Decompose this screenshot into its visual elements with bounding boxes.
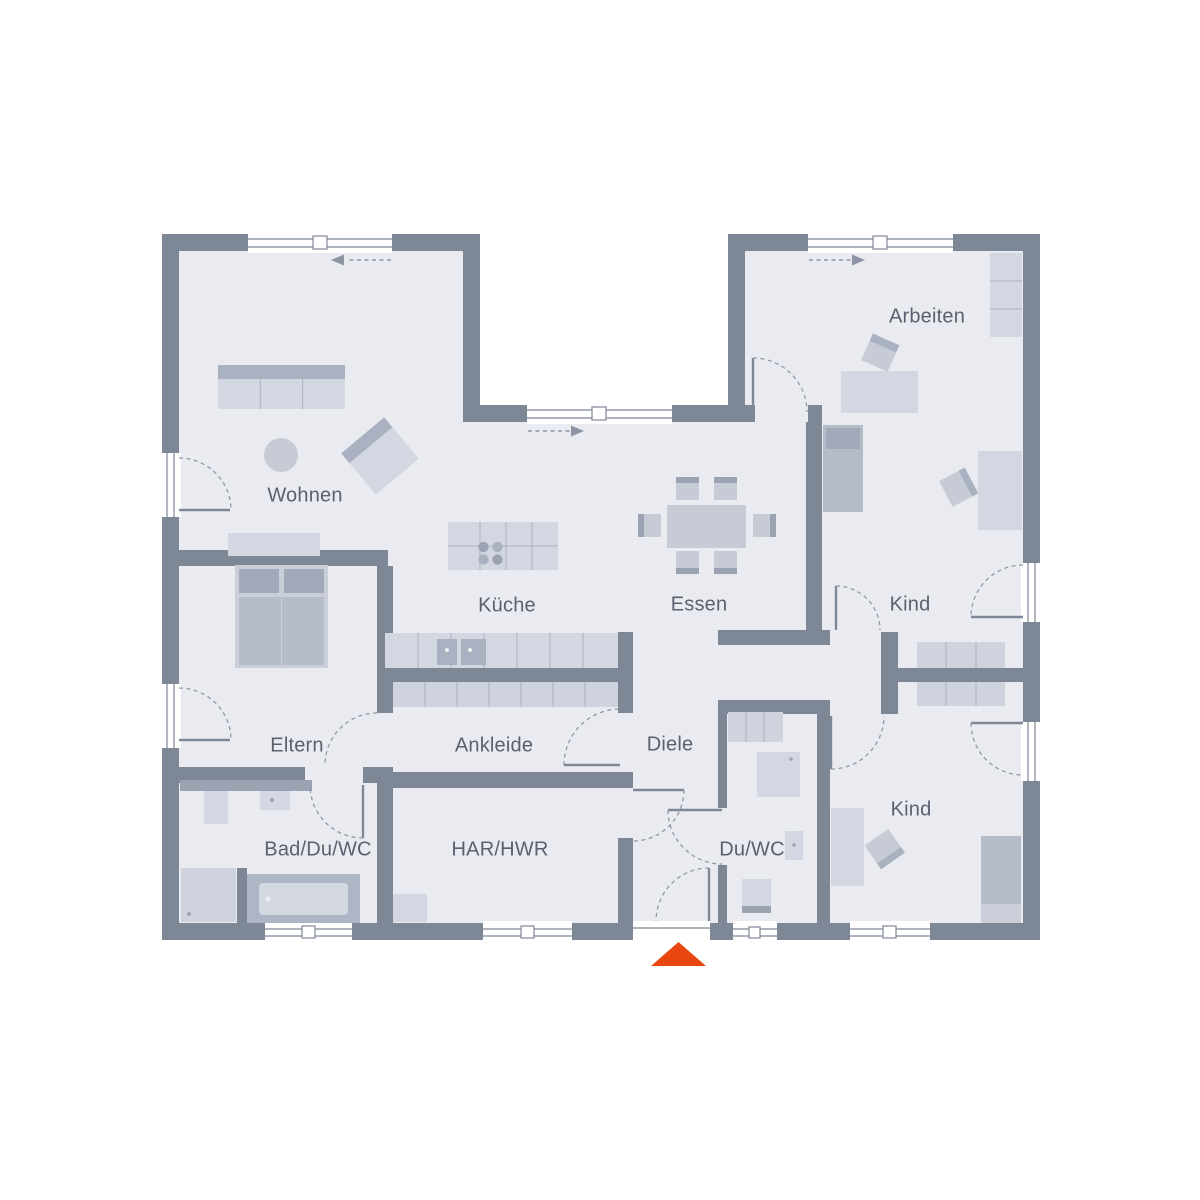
duwc-toilet: [785, 831, 803, 860]
window-duwc-bottom: [733, 921, 777, 942]
sofa: [218, 365, 345, 409]
window-wohnen-left: [160, 453, 181, 517]
room-label-diele: Diele: [647, 734, 694, 757]
duwc-cabinet: [728, 712, 783, 742]
room-label-har: HAR/HWR: [452, 839, 549, 862]
kind1-bed: [823, 425, 863, 512]
window-arbeiten-top: [808, 232, 953, 253]
window-eltern-left: [160, 684, 181, 748]
window-kind2-right: [1021, 722, 1042, 781]
room-label-eltern: Eltern: [270, 735, 323, 758]
floor-plan-drawing: [0, 0, 1200, 1200]
kitchen-counter: [385, 633, 618, 668]
room-label-kind2: Kind: [891, 799, 932, 822]
duwc-basin: [757, 752, 800, 797]
wardrobe-row-kind1: [917, 642, 1005, 668]
coffee-table: [264, 438, 298, 472]
wardrobe-row-ankleide: [393, 682, 618, 707]
floor-plan: Wohnen Küche Essen Arbeiten Kind Kind El…: [0, 0, 1200, 1200]
window-har-bottom: [483, 921, 572, 942]
room-label-arbeiten: Arbeiten: [889, 306, 965, 329]
kind2-desk: [831, 808, 864, 886]
har-appliance: [393, 894, 427, 922]
duwc-shower: [742, 879, 771, 913]
kind1-desk: [978, 451, 1022, 530]
room-label-wohnen: Wohnen: [267, 485, 342, 508]
room-label-kind1: Kind: [890, 594, 931, 617]
bathtub: [247, 874, 360, 923]
window-kind2-bottom: [850, 921, 930, 942]
window-bad-bottom: [265, 921, 352, 942]
wardrobe-row-kind2: [917, 682, 1005, 706]
window-wohnen-top: [248, 232, 392, 253]
window-kueche-notch: [527, 403, 672, 424]
room-label-kueche: Küche: [478, 595, 536, 618]
bath-shower: [181, 868, 236, 922]
sideboard: [228, 533, 320, 556]
room-label-bad: Bad/Du/WC: [264, 839, 371, 862]
room-label-essen: Essen: [671, 594, 728, 617]
entrance-arrow: [651, 942, 706, 966]
kind2-bed: [981, 836, 1021, 923]
office-desk: [841, 371, 918, 413]
room-label-ankleide: Ankleide: [455, 735, 533, 758]
dining-table: [667, 505, 746, 548]
kitchen-island: [448, 522, 558, 570]
eltern-bed: [235, 565, 328, 668]
office-shelf: [990, 253, 1022, 337]
window-kind1-right: [1021, 563, 1042, 622]
room-label-duwc: Du/WC: [719, 839, 784, 862]
entrance-door: [633, 921, 710, 942]
